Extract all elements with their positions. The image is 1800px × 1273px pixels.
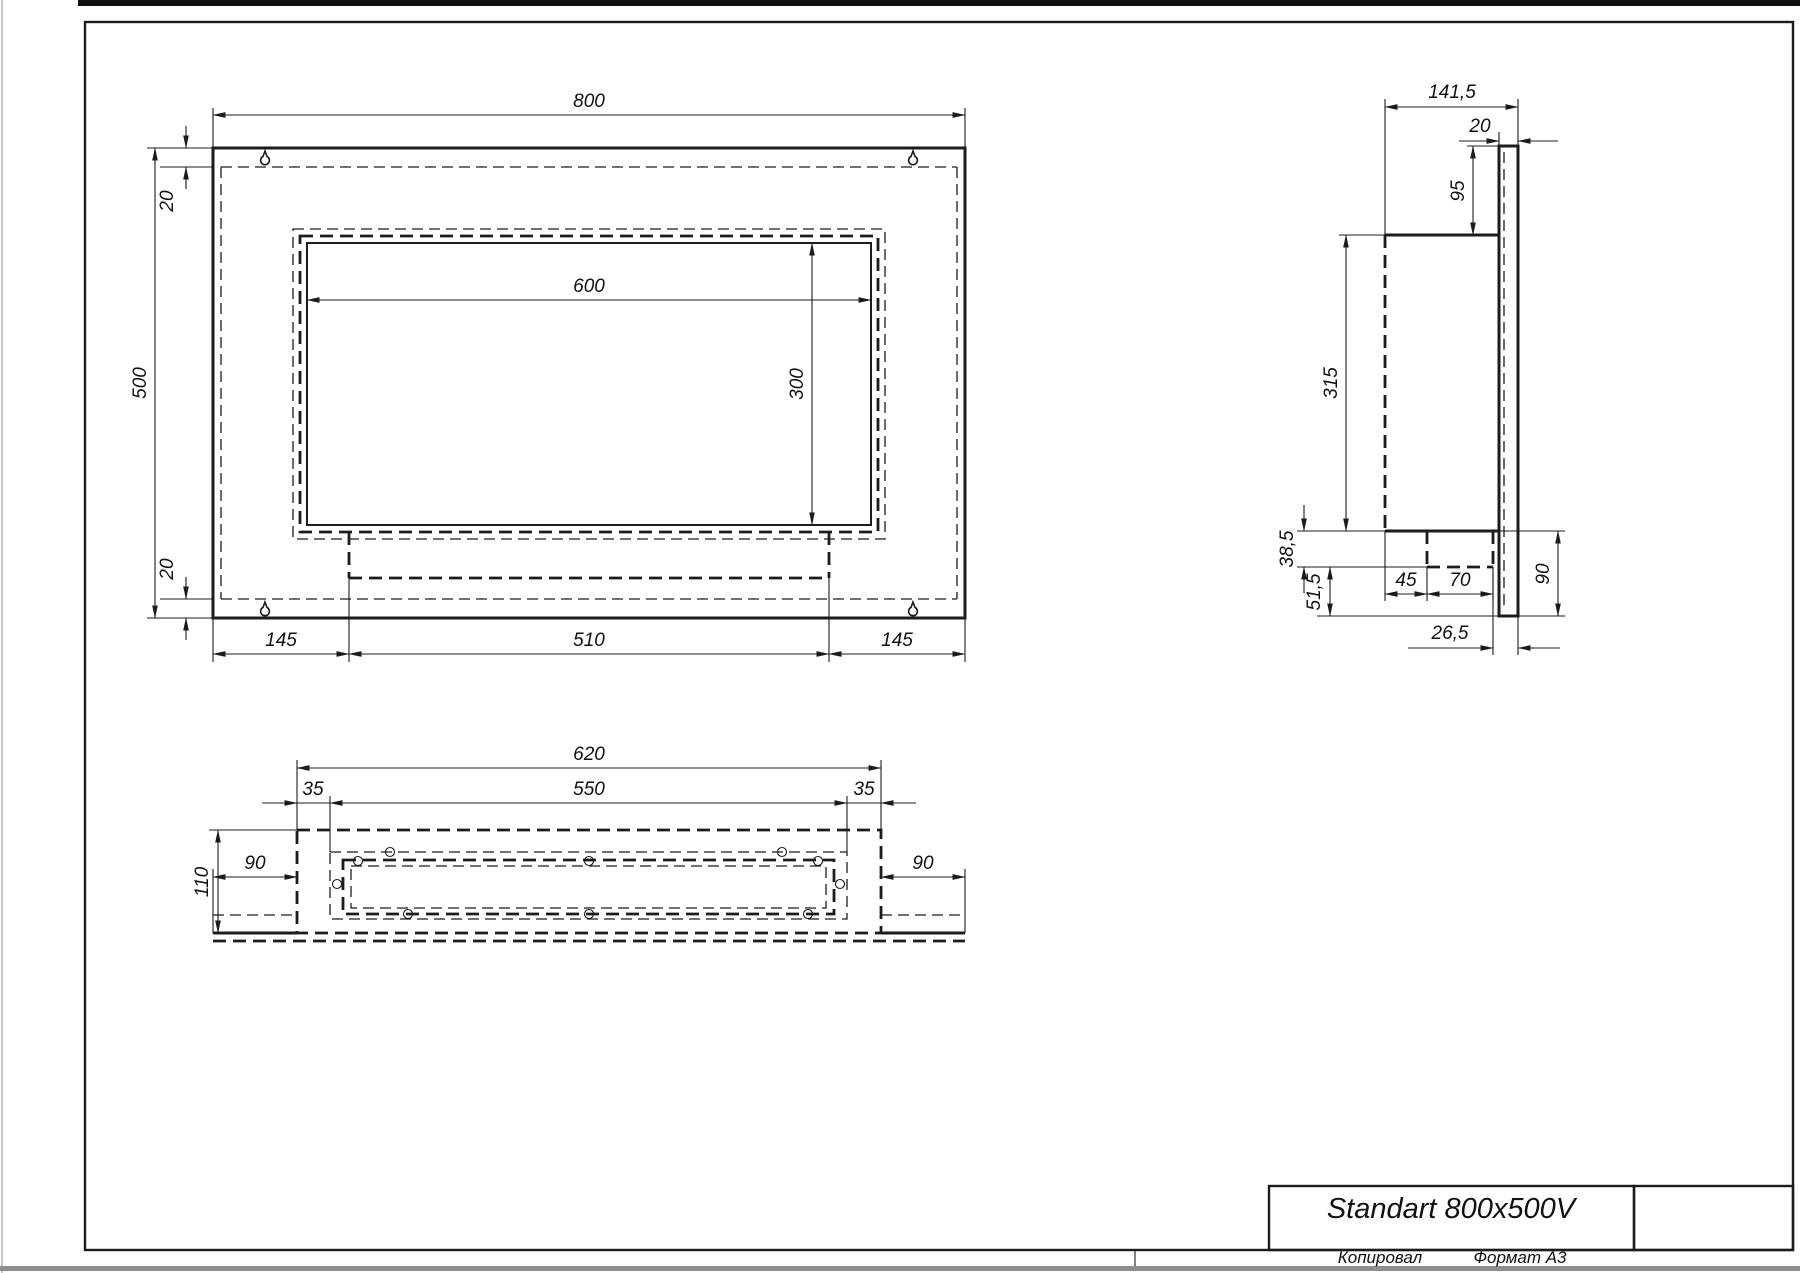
footer-copied-label: Копировал xyxy=(1338,1248,1423,1267)
dim-front-opening-width: 600 xyxy=(573,276,605,297)
keyhole-mount-icon xyxy=(909,602,918,616)
dim-side-tray-offset: 45 xyxy=(1395,570,1417,591)
dim-front-opening-height: 300 xyxy=(787,368,808,400)
keyhole-mount-icon xyxy=(261,151,270,165)
keyhole-mount-icon xyxy=(909,151,918,165)
bottom-opening-inner-hidden xyxy=(351,866,826,908)
drawing-sheet: 800 500 20 20 600 300 145 510 145 xyxy=(0,0,1800,1273)
dim-bottom-opening-width: 550 xyxy=(573,779,605,800)
scan-top-bar xyxy=(78,0,1800,6)
dim-side-panel-bottom-extension: 90 xyxy=(1533,563,1554,585)
drawing-title: Standart 800x500V xyxy=(1327,1193,1578,1225)
side-back-panel xyxy=(1499,146,1518,616)
side-view: 141,5 20 95 315 38,5 51,5 45 70 xyxy=(1277,82,1565,655)
dim-front-bottom-inset: 20 xyxy=(157,558,178,581)
bottom-opening-outer-hidden xyxy=(330,852,847,919)
dim-side-panel-thickness: 20 xyxy=(1468,116,1491,137)
hole xyxy=(836,880,845,889)
dim-side-tray-to-panel: 26,5 xyxy=(1431,623,1469,644)
dim-side-panel-top-extension: 95 xyxy=(1448,180,1469,202)
keyhole-mount-icon xyxy=(261,602,270,616)
dim-front-overall-height: 500 xyxy=(130,367,151,399)
title-block: Standart 800x500V Копировал Формат А3 xyxy=(1135,1186,1793,1267)
footer-format-label: Формат А3 xyxy=(1473,1248,1567,1267)
bottom-box-outline xyxy=(297,830,881,933)
dim-bottom-depth: 110 xyxy=(192,866,213,897)
dim-front-top-inset: 20 xyxy=(157,190,178,213)
hole xyxy=(333,880,342,889)
title-block-side-cell xyxy=(1634,1186,1793,1250)
dim-bottom-box-width: 620 xyxy=(573,744,605,765)
dim-side-tray-width: 70 xyxy=(1449,570,1471,591)
dim-side-body-height: 315 xyxy=(1321,367,1342,399)
drawing-svg: 800 500 20 20 600 300 145 510 145 xyxy=(0,0,1800,1273)
front-view: 800 500 20 20 600 300 145 510 145 xyxy=(130,91,965,662)
dim-bottom-right-inset: 35 xyxy=(853,779,875,800)
dim-bottom-right-flange: 90 xyxy=(912,853,934,874)
dim-front-bottom-right-margin: 145 xyxy=(881,630,913,651)
dim-bottom-left-inset: 35 xyxy=(302,779,324,800)
dim-bottom-left-flange: 90 xyxy=(244,853,266,874)
dim-side-panel-bottom-drop: 51,5 xyxy=(1304,573,1325,610)
dim-front-bottom-center-span: 510 xyxy=(573,630,605,651)
bottom-view: 620 35 550 35 110 90 90 xyxy=(192,744,965,941)
dim-front-bottom-left-margin: 145 xyxy=(265,630,297,651)
dim-side-tray-depth: 38,5 xyxy=(1277,530,1298,567)
front-outer-frame xyxy=(213,148,965,618)
dim-side-overall-depth: 141,5 xyxy=(1428,82,1476,103)
sheet-border xyxy=(85,22,1793,1250)
bottom-opening-hidden xyxy=(343,860,834,914)
dim-front-overall-width: 800 xyxy=(573,91,605,112)
